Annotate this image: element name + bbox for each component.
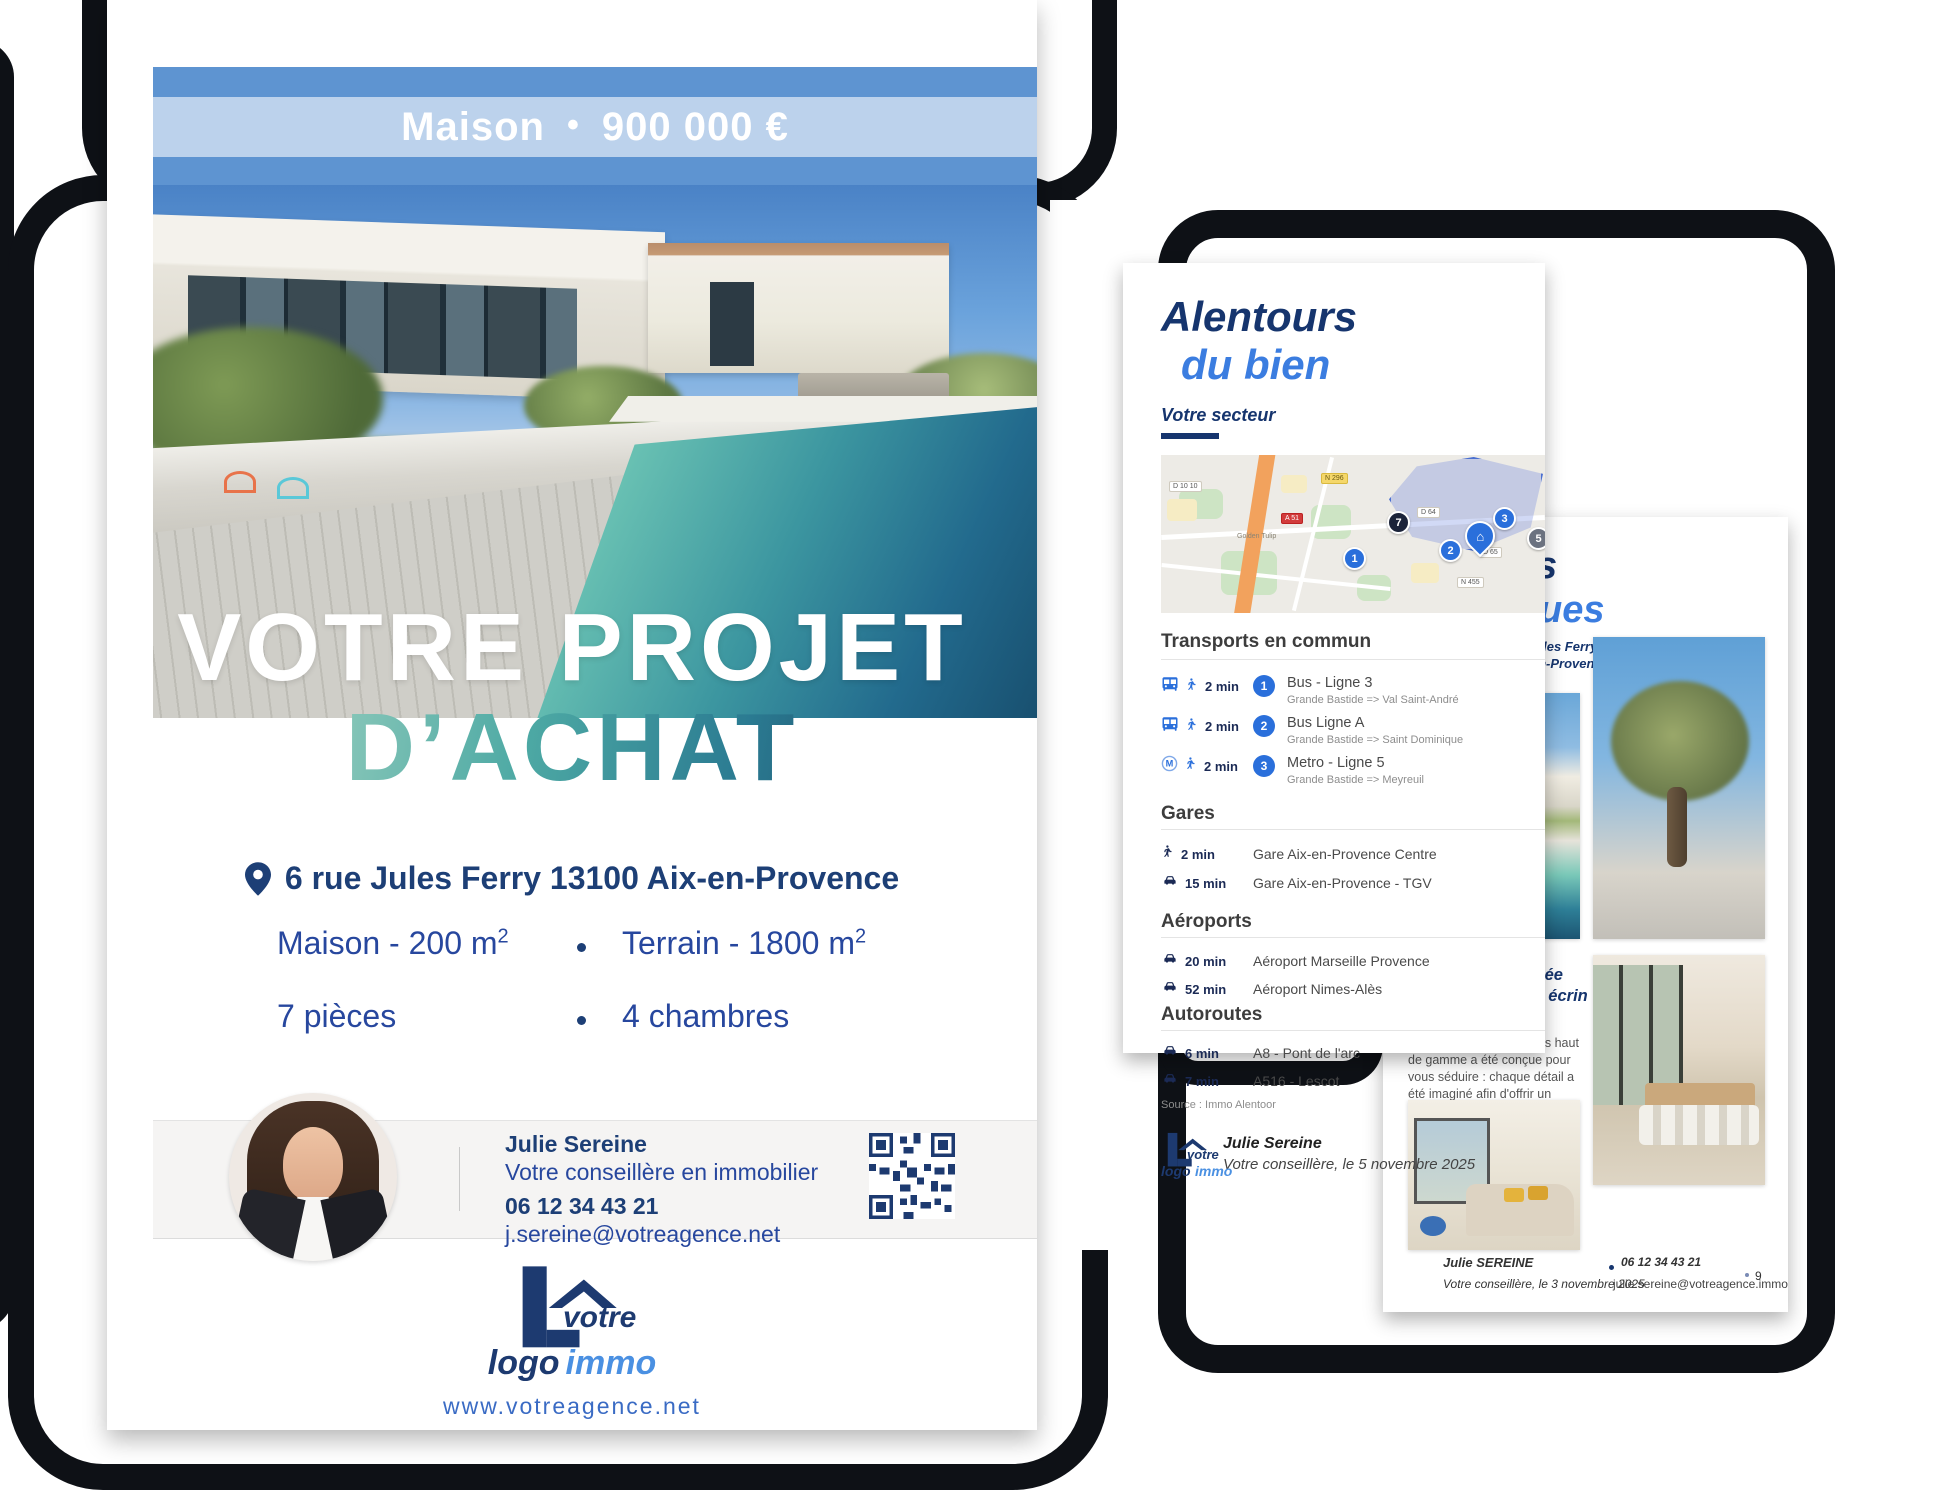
page-cover: Maison • 900 000 € VOTRE PROJET D’ACHAT … bbox=[107, 0, 1037, 1430]
detail-rooms: 7 pièces bbox=[277, 998, 577, 1035]
price-banner: Maison • 900 000 € bbox=[153, 97, 1037, 157]
property-address-row: 6 rue Jules Ferry 13100 Aix-en-Provence bbox=[107, 860, 1037, 897]
bus-icon bbox=[1161, 715, 1179, 738]
detail-bedrooms: 4 chambres bbox=[622, 998, 789, 1035]
road-label: D 64 bbox=[1417, 507, 1440, 518]
cover-title-line2: D’ACHAT bbox=[107, 700, 1037, 796]
highway-row: 7 min A516 - Lescot bbox=[1161, 1071, 1545, 1091]
metro-icon: M bbox=[1161, 755, 1178, 777]
detail-separator-dot bbox=[577, 943, 586, 952]
highway-time: 7 min bbox=[1185, 1074, 1219, 1089]
map-badge-2[interactable]: 2 bbox=[1439, 539, 1462, 562]
agency-website[interactable]: www.votreagence.net bbox=[443, 1393, 701, 1420]
walk-icon bbox=[1185, 676, 1199, 698]
signature-block: votre logo immo Julie Sereine Votre cons… bbox=[1161, 1131, 1475, 1177]
photos-footer-phone: 06 12 34 43 21 bbox=[1621, 1255, 1701, 1269]
photo-dining-room bbox=[1593, 955, 1765, 1185]
transit-time: 2 min bbox=[1205, 679, 1239, 694]
source-note: Source : Immo Alentoor bbox=[1161, 1099, 1276, 1111]
pin-icon bbox=[245, 862, 271, 896]
line-badge: 1 bbox=[1253, 675, 1275, 697]
property-price: 900 000 € bbox=[602, 105, 789, 150]
sector-underline bbox=[1161, 433, 1219, 439]
station-row: 15 min Gare Aix-en-Provence - TGV bbox=[1161, 873, 1545, 893]
car-icon bbox=[1161, 873, 1179, 893]
transit-heading: Transports en commun bbox=[1161, 631, 1371, 653]
sofa-cushion bbox=[1528, 1186, 1548, 1200]
transit-line-route: Grande Bastide => Saint Dominique bbox=[1287, 734, 1463, 746]
transit-line-name: Bus Ligne A bbox=[1287, 715, 1463, 732]
highway-name: A8 - Pont de l'arc bbox=[1253, 1045, 1360, 1061]
agent-avatar bbox=[229, 1093, 397, 1261]
divider bbox=[459, 1147, 460, 1211]
line-badge: 3 bbox=[1253, 755, 1275, 777]
road-label: N 455 bbox=[1457, 577, 1484, 588]
avatar-face bbox=[283, 1127, 343, 1201]
station-time: 15 min bbox=[1185, 876, 1226, 891]
car-icon bbox=[1161, 951, 1179, 971]
map-zone bbox=[1411, 563, 1439, 583]
detail-terrain: Terrain - 1800 m2 bbox=[622, 925, 866, 962]
detail-surface: Maison - 200 m2 bbox=[277, 925, 577, 962]
page-alentours: Alentours du bien Votre secteur D 10 10 … bbox=[1123, 263, 1545, 1053]
airport-name: Aéroport Nimes-Alès bbox=[1253, 981, 1382, 997]
airport-row: 52 min Aéroport Nimes-Alès bbox=[1161, 979, 1545, 999]
transit-time: 2 min bbox=[1205, 719, 1239, 734]
transit-row: 2 min 2 Bus Ligne A Grande Bastide => Sa… bbox=[1161, 715, 1545, 746]
airport-row: 20 min Aéroport Marseille Provence bbox=[1161, 951, 1545, 971]
agent-email[interactable]: j.sereine@votreagence.net bbox=[505, 1221, 780, 1248]
airports-heading: Aéroports bbox=[1161, 911, 1252, 933]
surroundings-title-line2: du bien bbox=[1181, 341, 1330, 389]
walk-icon bbox=[1184, 755, 1198, 777]
road-label: A 51 bbox=[1281, 513, 1303, 524]
divider bbox=[1161, 937, 1545, 938]
property-address: 6 rue Jules Ferry 13100 Aix-en-Provence bbox=[285, 860, 899, 897]
highway-row: 6 min A8 - Pont de l'arc bbox=[1161, 1043, 1545, 1063]
olive-tree-foliage bbox=[1611, 681, 1749, 801]
avatar-blazer bbox=[230, 1187, 305, 1261]
sector-label: Votre secteur bbox=[1161, 405, 1275, 426]
banner-separator: • bbox=[567, 106, 580, 145]
divider bbox=[1161, 1030, 1545, 1031]
station-name: Gare Aix-en-Provence - TGV bbox=[1253, 875, 1432, 891]
highway-name: A516 - Lescot bbox=[1253, 1073, 1339, 1089]
transit-line-name: Bus - Ligne 3 bbox=[1287, 675, 1459, 692]
transit-line-route: Grande Bastide => Meyreuil bbox=[1287, 774, 1424, 786]
dining-chairs bbox=[1639, 1105, 1759, 1145]
map-zone bbox=[1281, 475, 1307, 493]
airport-time: 52 min bbox=[1185, 982, 1226, 997]
map-badge-7[interactable]: 7 bbox=[1387, 511, 1410, 534]
brochure-mockup-canvas: Prises de vues 6 Avenue Jules Ferry 1310… bbox=[0, 0, 1958, 1512]
highway-time: 6 min bbox=[1185, 1046, 1219, 1061]
page-number: 9 bbox=[1755, 1269, 1762, 1283]
photo-chair bbox=[224, 471, 256, 493]
map-badge-3[interactable]: 3 bbox=[1493, 507, 1516, 530]
station-row: 2 min Gare Aix-en-Provence Centre bbox=[1161, 843, 1545, 865]
signature-line: Votre conseillère, le 5 novembre 2025 bbox=[1223, 1156, 1475, 1173]
transit-time: 2 min bbox=[1204, 759, 1238, 774]
transit-line-route: Grande Bastide => Val Saint-André bbox=[1287, 694, 1459, 706]
walk-icon bbox=[1161, 843, 1175, 865]
photo-annex bbox=[648, 243, 949, 373]
car-icon bbox=[1161, 1071, 1179, 1091]
property-type: Maison bbox=[401, 105, 545, 150]
station-time: 2 min bbox=[1181, 847, 1215, 862]
background-patch bbox=[1050, 200, 1130, 1250]
agent-role: Votre conseillère en immobilier bbox=[505, 1159, 818, 1186]
sofa-cushion bbox=[1504, 1188, 1524, 1202]
photo-olive-tree bbox=[1593, 637, 1765, 939]
bullet-dot bbox=[1609, 1265, 1614, 1270]
walk-icon bbox=[1185, 716, 1199, 738]
stations-heading: Gares bbox=[1161, 803, 1215, 825]
svg-text:M: M bbox=[1166, 759, 1174, 769]
agent-name: Julie Sereine bbox=[505, 1131, 647, 1158]
photo-chair bbox=[277, 477, 309, 499]
road-label: N 296 bbox=[1321, 473, 1348, 484]
photos-footer-agent-name: Julie SEREINE bbox=[1443, 1255, 1533, 1270]
divider bbox=[1161, 659, 1545, 660]
road-label: D 10 10 bbox=[1169, 481, 1202, 492]
surroundings-title-line1: Alentours bbox=[1161, 293, 1357, 341]
map-badge-1[interactable]: 1 bbox=[1343, 547, 1366, 570]
bullet-dot bbox=[1745, 1273, 1749, 1277]
highways-heading: Autoroutes bbox=[1161, 1004, 1262, 1026]
banner-stripe-top bbox=[153, 67, 1037, 97]
photo-annex-door bbox=[710, 282, 754, 367]
airport-time: 20 min bbox=[1185, 954, 1226, 969]
transit-row: M 2 min 3 Metro - Ligne 5 Grande Bastide… bbox=[1161, 755, 1545, 786]
property-details: Maison - 200 m2 Terrain - 1800 m2 7 pièc… bbox=[277, 925, 877, 1071]
bus-icon bbox=[1161, 675, 1179, 698]
map-zone bbox=[1167, 499, 1197, 521]
logo-word-votre: votre bbox=[563, 1304, 636, 1331]
line-badge: 2 bbox=[1253, 715, 1275, 737]
logo-icon: votre logo immo bbox=[1161, 1131, 1209, 1177]
airport-name: Aéroport Marseille Provence bbox=[1253, 953, 1430, 969]
transit-line-name: Metro - Ligne 5 bbox=[1287, 755, 1424, 772]
station-name: Gare Aix-en-Provence Centre bbox=[1253, 846, 1437, 862]
agent-card: Julie Sereine Votre conseillère en immob… bbox=[153, 1120, 1037, 1239]
olive-tree-trunk bbox=[1667, 787, 1687, 867]
car-icon bbox=[1161, 1043, 1179, 1063]
signature-name: Julie Sereine bbox=[1223, 1135, 1475, 1153]
cover-title-line1: VOTRE PROJET bbox=[107, 600, 1037, 696]
map-badge-5[interactable]: 5 bbox=[1527, 527, 1545, 550]
map-poi-label: Golden Tulip bbox=[1237, 533, 1276, 540]
qr-code[interactable] bbox=[869, 1133, 955, 1219]
agent-phone[interactable]: 06 12 34 43 21 bbox=[505, 1193, 658, 1220]
sector-map[interactable]: D 10 10 N 296 A 51 D 64 D 65 N 455 Golde… bbox=[1161, 455, 1545, 613]
avatar-blazer bbox=[320, 1187, 395, 1261]
car-icon bbox=[1161, 979, 1179, 999]
detail-separator-dot bbox=[577, 1016, 586, 1025]
transit-row: 2 min 1 Bus - Ligne 3 Grande Bastide => … bbox=[1161, 675, 1545, 706]
agency-logo: votre logo immo www.votreagence.net bbox=[107, 1262, 1037, 1420]
divider bbox=[1161, 829, 1545, 830]
banner-stripe-bottom bbox=[153, 157, 1037, 185]
living-pouf bbox=[1420, 1216, 1446, 1236]
